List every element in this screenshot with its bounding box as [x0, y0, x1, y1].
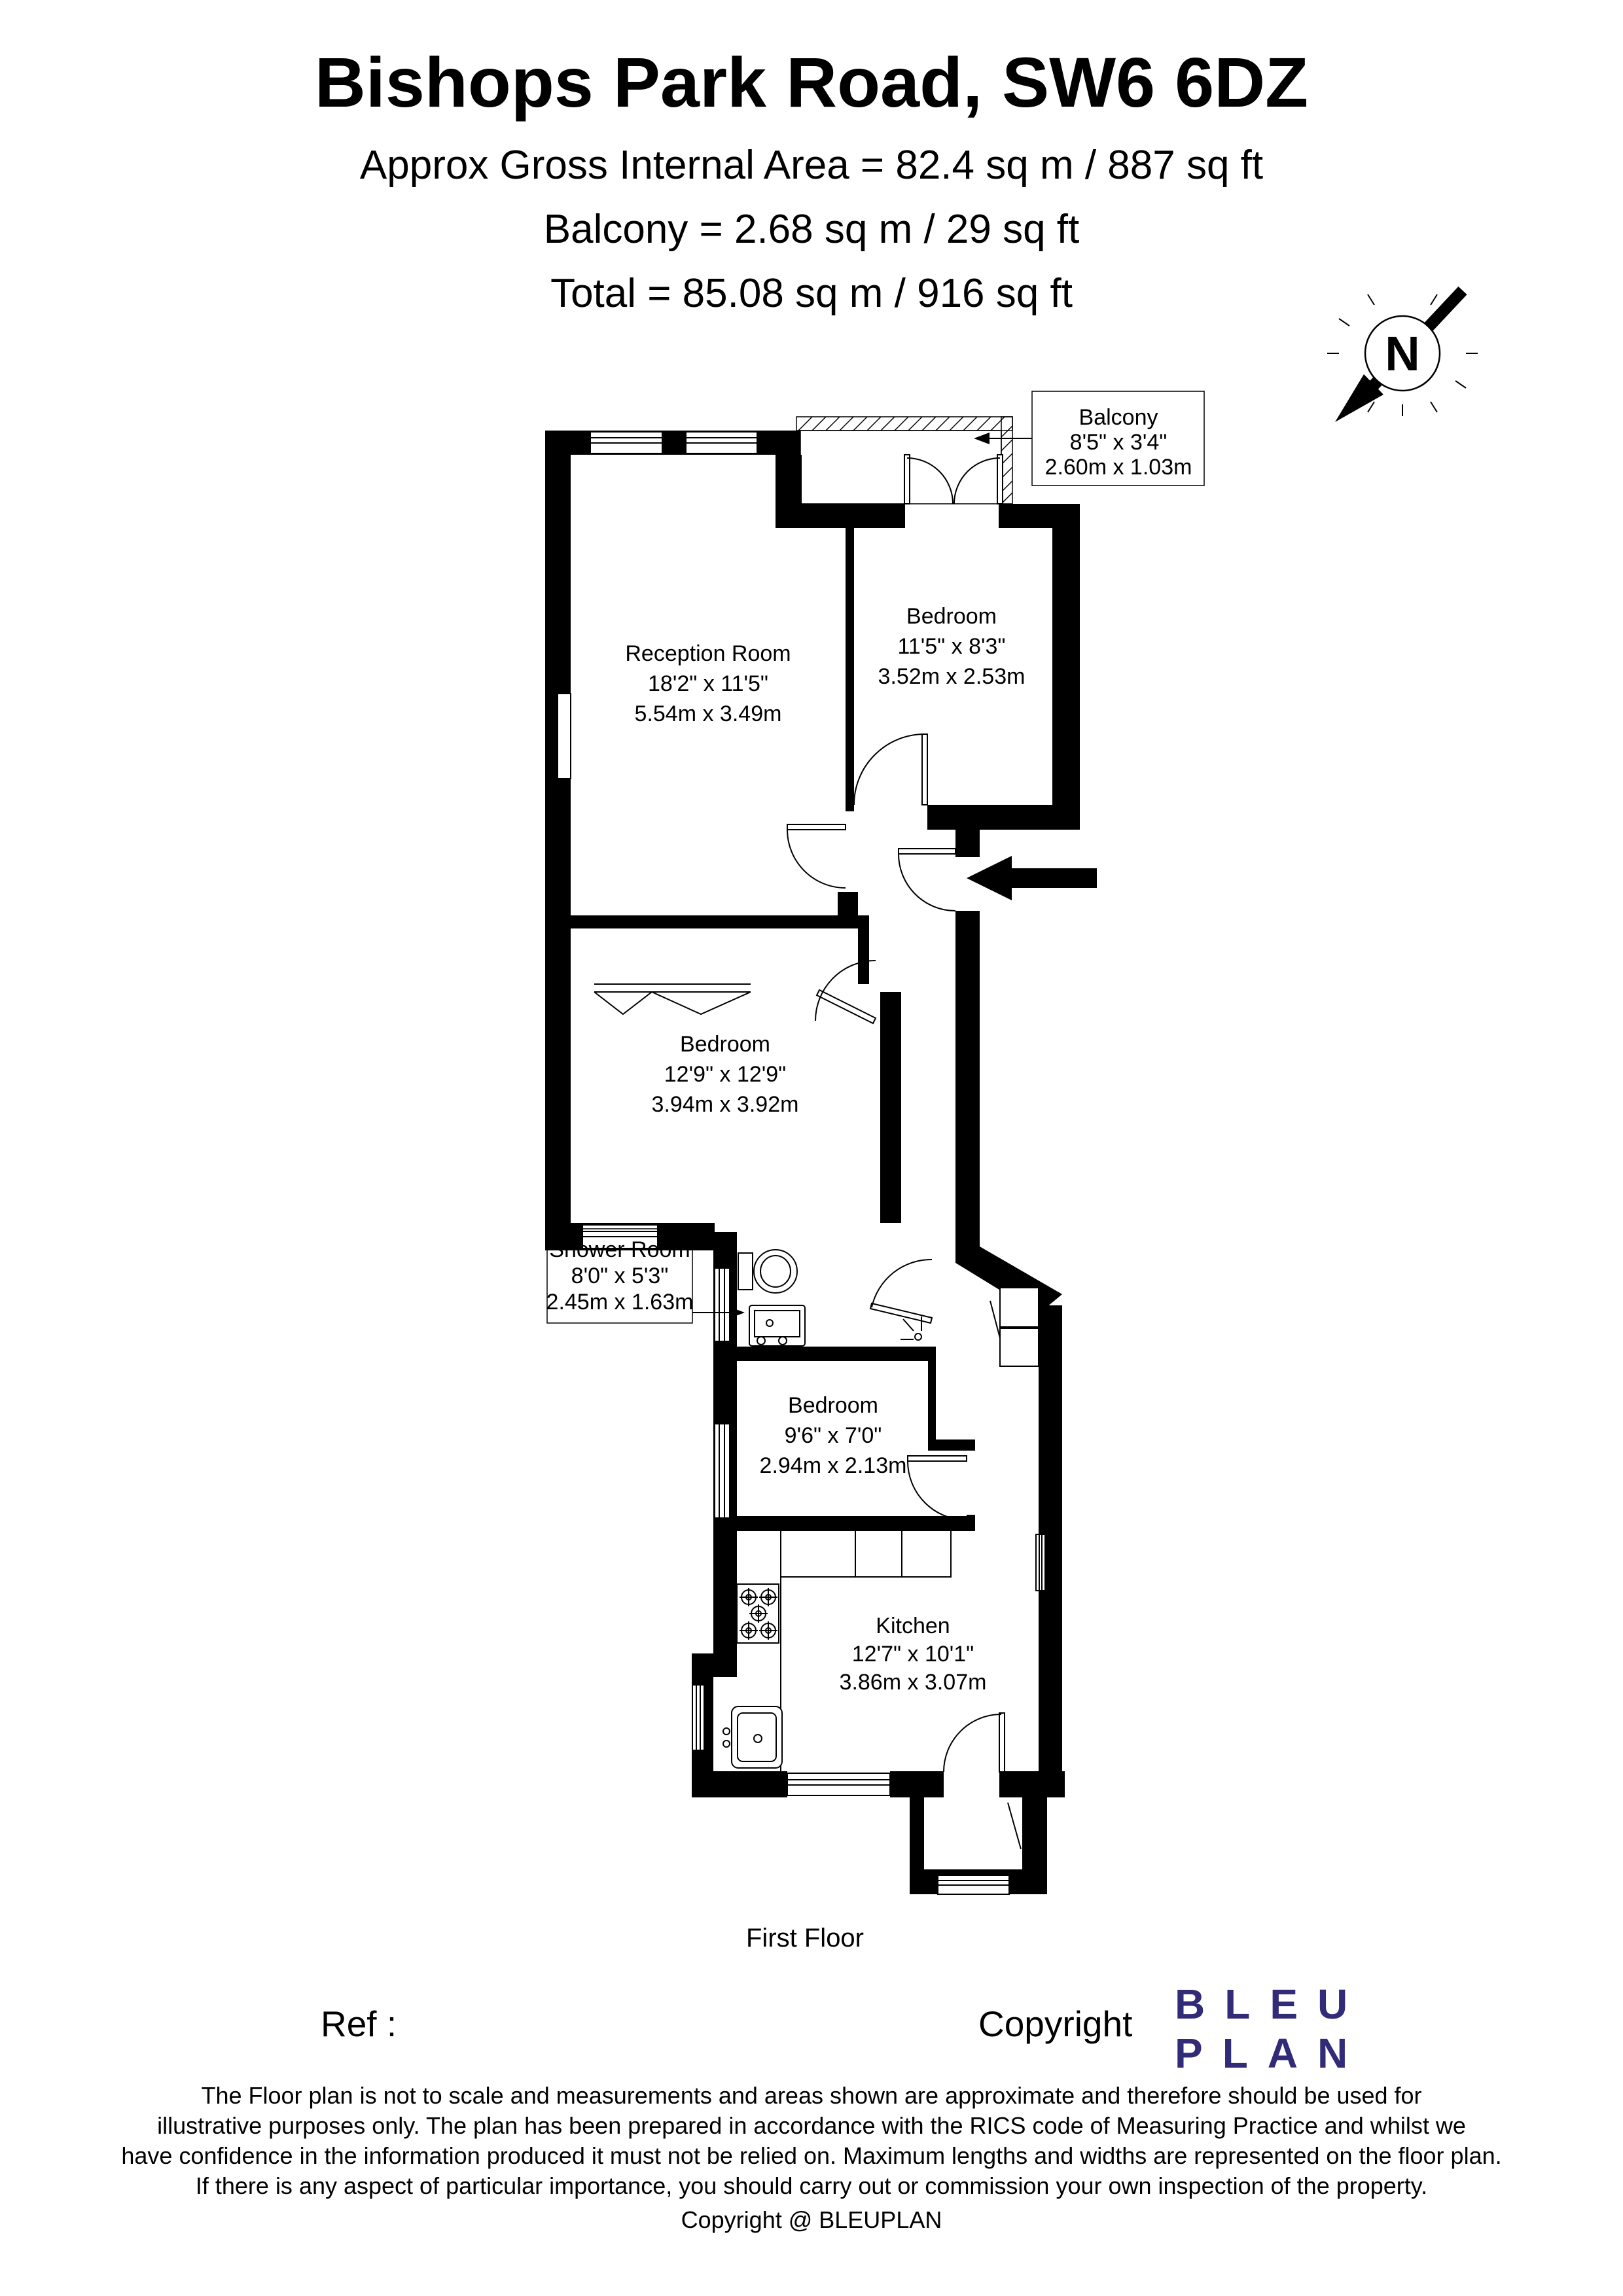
disclaimer-line-3: have confidence in the information produ…	[121, 2142, 1501, 2169]
reception-door	[787, 824, 846, 888]
bedroom1-dims-m: 3.52m x 2.53m	[878, 664, 1026, 689]
extension-window	[938, 1875, 1009, 1894]
kitchen-left-window	[692, 1685, 704, 1750]
page-title: Bishops Park Road, SW6 6DZ	[315, 43, 1308, 122]
balcony-label: Balcony	[1079, 405, 1158, 430]
bedroom3-dims-m: 2.94m x 2.13m	[760, 1453, 907, 1478]
logo-line1: BLEU	[1175, 1981, 1367, 2028]
bedroom1-door	[854, 734, 927, 805]
basin-icon	[749, 1305, 805, 1346]
kitchen-name: Kitchen	[876, 1614, 950, 1638]
copyright-label: Copyright	[978, 2004, 1132, 2044]
bedroom1-dims-ft: 11'5" x 8'3"	[897, 634, 1005, 659]
reception-dims-m: 5.54m x 3.49m	[635, 701, 782, 726]
cupboards	[1000, 1288, 1039, 1366]
disclaimer-line-4: If there is any aspect of particular imp…	[196, 2172, 1427, 2199]
shower-label: Shower Room	[549, 1237, 690, 1262]
footer: Ref : Copyright BLEU PLAN The Floor plan…	[121, 1981, 1501, 2233]
copyright-line: Copyright @ BLEUPLAN	[681, 2206, 942, 2233]
rear-door	[944, 1713, 1005, 1772]
bedroom2-dims-m: 3.94m x 3.92m	[652, 1092, 799, 1117]
reception-dims-ft: 18'2" x 11'5"	[648, 671, 768, 696]
shower-window	[715, 1268, 730, 1341]
disclaimer-line-2: illustrative purposes only. The plan has…	[157, 2112, 1466, 2139]
kitchen-sink-icon	[723, 1706, 782, 1768]
kitchen-bottom-window	[787, 1773, 890, 1795]
bedroom1-name: Bedroom	[906, 604, 997, 629]
shower-door	[870, 1260, 932, 1323]
bedroom2-name: Bedroom	[680, 1032, 770, 1057]
reception-recess	[558, 694, 571, 779]
bedroom3-window	[715, 1424, 730, 1518]
north-arrow-icon: N	[1327, 291, 1478, 422]
balcony-leader-arrow	[974, 433, 990, 444]
toilet-icon	[738, 1250, 797, 1293]
logo-line2: PLAN	[1175, 2030, 1367, 2077]
subtitle-total-area: Total = 85.08 sq m / 916 sq ft	[550, 271, 1073, 316]
kitchen-right-window	[1036, 1534, 1045, 1591]
hob-icon	[737, 1584, 779, 1643]
reception-window-1	[590, 432, 662, 453]
balcony-dims-m: 2.60m x 1.03m	[1045, 455, 1192, 480]
shower-dims-m: 2.45m x 1.63m	[546, 1290, 694, 1315]
reception-name: Reception Room	[625, 641, 791, 666]
bedroom2-dims-ft: 12'9" x 12'9"	[664, 1062, 786, 1087]
entrance-door	[899, 849, 955, 911]
kitchen-dims-ft: 12'7" x 10'1"	[852, 1642, 974, 1667]
ref-label: Ref :	[321, 2004, 397, 2044]
subtitle-balcony-area: Balcony = 2.68 sq m / 29 sq ft	[544, 207, 1080, 252]
kitchen-door	[908, 1456, 967, 1520]
reception-window-2	[686, 432, 757, 453]
balcony-french-doors	[904, 455, 1003, 504]
bedroom3-name: Bedroom	[788, 1393, 878, 1418]
shower-dims-ft: 8'0" x 5'3"	[571, 1263, 669, 1288]
wardrobe-icon	[594, 984, 751, 1014]
disclaimer-line-1: The Floor plan is not to scale and measu…	[201, 2082, 1421, 2109]
north-label: N	[1385, 327, 1419, 381]
extension-door-leaf	[1008, 1803, 1021, 1849]
kitchen-dims-m: 3.86m x 3.07m	[840, 1670, 987, 1695]
floor-label: First Floor	[746, 1924, 864, 1952]
balcony-dims-ft: 8'5" x 3'4"	[1070, 430, 1168, 455]
floor-plan-svg: Bishops Park Road, SW6 6DZ Approx Gross …	[0, 0, 1623, 2296]
bedroom3-dims-ft: 9'6" x 7'0"	[785, 1423, 882, 1448]
entrance-arrow-icon	[967, 856, 1097, 900]
subtitle-gross-area: Approx Gross Internal Area = 82.4 sq m /…	[360, 143, 1263, 188]
